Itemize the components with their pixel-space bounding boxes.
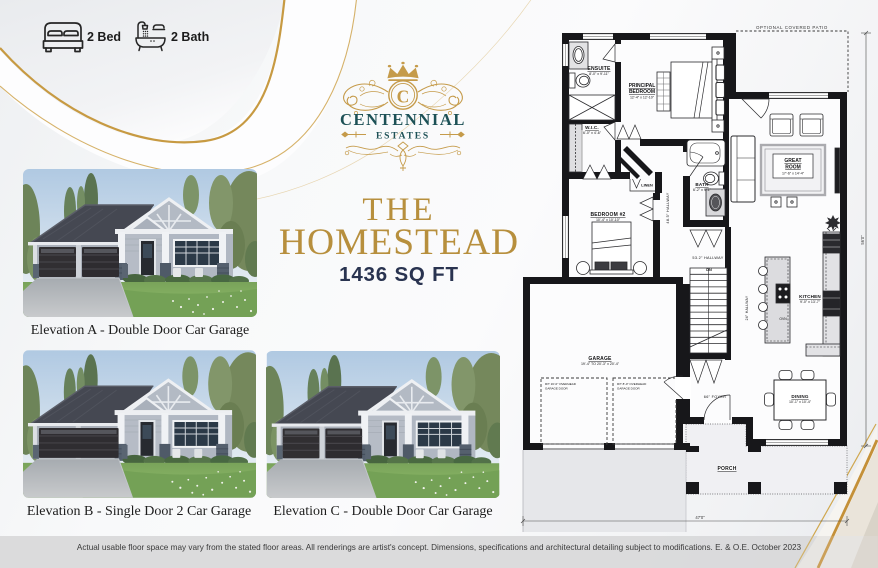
svg-text:R/T 8'-0" OVERHEAD: R/T 8'-0" OVERHEAD [617,382,647,386]
svg-text:DN: DN [706,268,712,272]
svg-text:10'-1" x 10'-4": 10'-1" x 10'-4" [789,400,812,404]
svg-text:GARAGE DOOR: GARAGE DOOR [545,387,569,391]
svg-text:48.5" HALLWAY: 48.5" HALLWAY [666,192,670,223]
svg-text:OPTIONAL COVERED PATIO: OPTIONAL COVERED PATIO [756,25,828,30]
svg-text:BATH: BATH [695,182,709,187]
svg-text:8'-0" x 9'-11": 8'-0" x 9'-11" [589,72,610,76]
svg-text:R/T 16'-0" OVERHEAD: R/T 16'-0" OVERHEAD [545,382,577,386]
svg-text:ROOM: ROOM [785,165,801,171]
svg-text:BEDROOM: BEDROOM [629,89,655,95]
svg-text:OVN: OVN [779,317,787,321]
svg-text:17'-6" x 14'-4": 17'-6" x 14'-4" [782,172,805,176]
svg-text:10'-4" x 10'-10": 10'-4" x 10'-10" [596,218,621,222]
svg-text:GARAGE DOOR: GARAGE DOOR [617,387,641,391]
svg-text:LINEN: LINEN [641,184,653,188]
svg-text:53.2" HALLWAY: 53.2" HALLWAY [692,256,723,260]
svg-text:GARAGE: GARAGE [588,356,612,362]
svg-text:56'0": 56'0" [860,235,865,245]
svg-text:6'-0" x 4'-6": 6'-0" x 4'-6" [583,131,602,135]
svg-text:6'-2" x 9'-1": 6'-2" x 9'-1" [693,188,712,192]
svg-text:12'-4" x 12'-10": 12'-4" x 12'-10" [630,96,655,100]
svg-text:GREAT: GREAT [784,158,801,164]
svg-text:KITCHEN: KITCHEN [799,294,821,299]
svg-text:W.I.C.: W.I.C. [585,125,599,130]
svg-text:BEDROOM #2: BEDROOM #2 [590,212,625,218]
svg-text:ENSUITE: ENSUITE [587,66,611,72]
svg-text:DINING: DINING [791,394,809,399]
svg-text:PORCH: PORCH [717,466,736,472]
svg-text:9'-0" x 13'-7": 9'-0" x 13'-7" [800,300,821,304]
svg-text:19'-4" TO 20'-3" x 20'-4": 19'-4" TO 20'-3" x 20'-4" [581,362,620,366]
svg-text:24" HALLWAY: 24" HALLWAY [745,295,749,320]
svg-text:66" FOYER: 66" FOYER [704,395,726,399]
svg-text:47'0": 47'0" [695,515,705,520]
